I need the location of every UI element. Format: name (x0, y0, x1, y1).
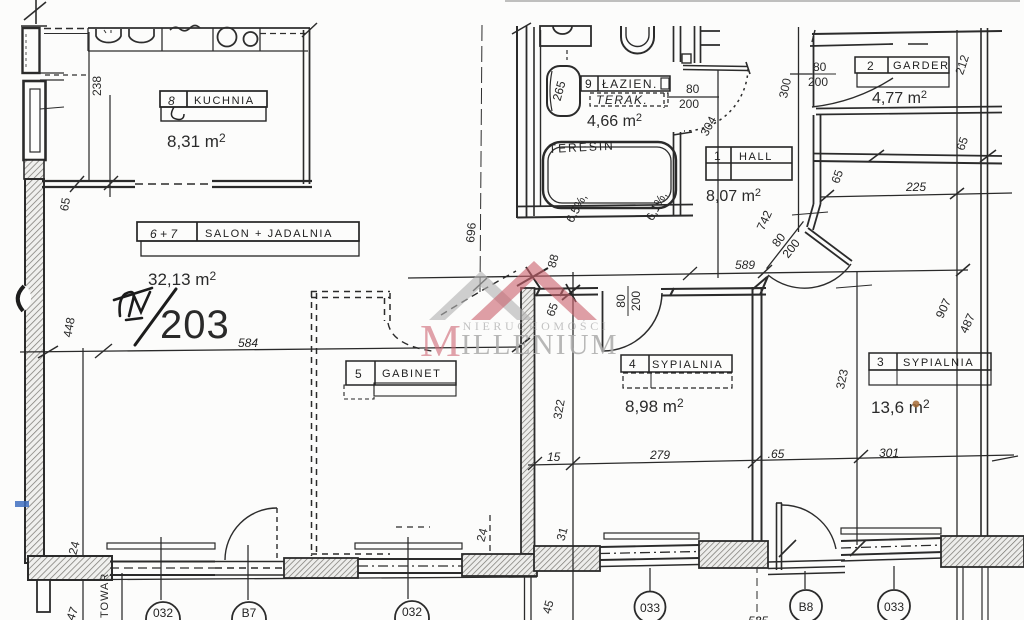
svg-text:203: 203 (160, 303, 230, 347)
svg-text:1: 1 (714, 149, 721, 163)
svg-text:8,31 m2: 8,31 m2 (167, 131, 226, 151)
svg-text:65: 65 (57, 196, 73, 212)
svg-text:GARDER: GARDER (893, 60, 950, 72)
svg-text:13,6 m2: 13,6 m2 (871, 397, 930, 417)
svg-text:8: 8 (168, 94, 175, 108)
svg-text:3: 3 (877, 355, 884, 369)
svg-text:GABINET: GABINET (382, 368, 442, 380)
svg-text:032: 032 (402, 605, 422, 619)
svg-text:80: 80 (614, 294, 628, 308)
svg-text:SYPIALNIA: SYPIALNIA (652, 359, 723, 371)
svg-text:696: 696 (463, 222, 479, 243)
svg-text:SYPIALNIA: SYPIALNIA (903, 357, 974, 369)
svg-text:238: 238 (90, 76, 104, 96)
svg-text:200: 200 (629, 291, 643, 311)
svg-text:TERAK.: TERAK. (596, 93, 648, 107)
svg-text:9: 9 (585, 77, 592, 91)
svg-text:225: 225 (905, 180, 926, 194)
svg-text:200: 200 (679, 97, 699, 111)
svg-text:ŁAZIEN.: ŁAZIEN. (602, 77, 658, 91)
svg-text:589: 589 (735, 258, 755, 272)
svg-text:80: 80 (813, 60, 827, 74)
svg-text:4,77 m2: 4,77 m2 (872, 89, 927, 107)
svg-text:200: 200 (808, 75, 828, 89)
svg-text:32,13 m2: 32,13 m2 (148, 269, 216, 289)
svg-text:5: 5 (355, 367, 362, 381)
svg-text:584: 584 (238, 336, 258, 350)
svg-text:033: 033 (640, 601, 660, 615)
svg-text:80: 80 (686, 82, 700, 96)
svg-text:M: M (420, 315, 461, 366)
svg-text:033: 033 (884, 600, 904, 614)
svg-text:301: 301 (879, 446, 899, 460)
svg-text:B7: B7 (242, 606, 257, 620)
svg-text:SALON + JADALNIA: SALON + JADALNIA (205, 228, 333, 240)
svg-text:15: 15 (547, 450, 561, 464)
svg-text:4: 4 (629, 357, 636, 371)
svg-text:279: 279 (649, 448, 670, 462)
svg-text:032: 032 (153, 606, 173, 620)
svg-text:535: 535 (748, 614, 768, 620)
svg-text:KUCHNIA: KUCHNIA (194, 95, 255, 107)
svg-text:8,07 m2: 8,07 m2 (706, 187, 761, 205)
svg-text:TOWAR: TOWAR (99, 573, 111, 618)
svg-text:HALL: HALL (739, 151, 773, 163)
svg-text:8,98 m2: 8,98 m2 (625, 396, 684, 416)
svg-text:B8: B8 (799, 600, 814, 614)
svg-text:ILLENIUM: ILLENIUM (461, 329, 619, 361)
svg-text:.65: .65 (768, 447, 785, 461)
svg-text:4,66 m2: 4,66 m2 (587, 112, 642, 130)
svg-text:2: 2 (867, 59, 874, 73)
svg-text:6 + 7: 6 + 7 (150, 227, 178, 241)
